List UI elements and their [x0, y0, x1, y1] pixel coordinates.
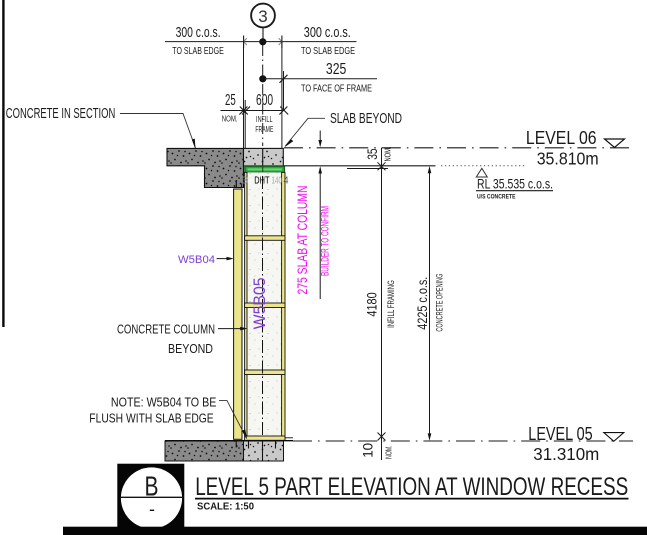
svg-text:NOM.: NOM. [222, 113, 238, 123]
svg-text:W5B04: W5B04 [178, 254, 215, 266]
svg-text:325: 325 [326, 61, 346, 78]
svg-text:NOM.: NOM. [385, 445, 394, 459]
svg-text:4180: 4180 [365, 292, 380, 316]
svg-text:3: 3 [241, 176, 250, 187]
svg-text:3: 3 [258, 7, 267, 26]
svg-text:INFILL: INFILL [256, 114, 273, 124]
svg-text:TO FACE OF FRAME: TO FACE OF FRAME [301, 82, 372, 94]
svg-text:NOTE: W5B04 TO BE: NOTE: W5B04 TO BE [111, 395, 217, 409]
svg-text:35: 35 [365, 148, 380, 159]
svg-text:CONCRETE COLUMN: CONCRETE COLUMN [117, 323, 215, 337]
svg-text:600: 600 [256, 92, 273, 109]
svg-text:25: 25 [225, 92, 236, 109]
svg-text:SCALE: 1:50: SCALE: 1:50 [197, 501, 254, 513]
svg-text:SLAB BEYOND: SLAB BEYOND [330, 111, 402, 127]
svg-text:4225 c.o.s.: 4225 c.o.s. [415, 277, 430, 330]
svg-text:LEVEL 05: LEVEL 05 [528, 423, 592, 444]
svg-text:300 c.o.s.: 300 c.o.s. [176, 24, 221, 41]
svg-text:35.810m: 35.810m [537, 149, 599, 169]
svg-text:FRAME: FRAME [255, 124, 273, 134]
svg-text:LEVEL 5 PART ELEVATION AT WIND: LEVEL 5 PART ELEVATION AT WINDOW RECESS [195, 473, 628, 501]
svg-text:FLUSH WITH SLAB EDGE: FLUSH WITH SLAB EDGE [89, 412, 213, 426]
svg-text:140: 140 [272, 176, 283, 187]
svg-text:INFILL FRAMING: INFILL FRAMING [386, 280, 397, 328]
svg-text:TO SLAB EDGE: TO SLAB EDGE [301, 45, 355, 57]
svg-text:LEVEL 06: LEVEL 06 [526, 127, 597, 148]
svg-text:BUILDER TO CONFIRM: BUILDER TO CONFIRM [319, 206, 331, 276]
svg-text:CONCRETE IN SECTION: CONCRETE IN SECTION [6, 106, 116, 122]
svg-text:300 c.o.s.: 300 c.o.s. [304, 24, 351, 41]
svg-text:CONCRETE OPENING: CONCRETE OPENING [434, 274, 445, 332]
svg-text:BEYOND: BEYOND [168, 342, 213, 356]
svg-text:W5B05: W5B05 [250, 277, 269, 329]
svg-text:31.310m: 31.310m [533, 444, 599, 464]
svg-text:TO SLAB EDGE: TO SLAB EDGE [172, 45, 224, 57]
svg-text:U/S CONCRETE: U/S CONCRETE [477, 193, 516, 200]
svg-text:275 SLAB AT COLUMN: 275 SLAB AT COLUMN [294, 186, 310, 295]
svg-text:10: 10 [360, 443, 375, 458]
svg-text:4: 4 [284, 176, 289, 187]
svg-text:-: - [149, 499, 155, 519]
svg-text:NOM.: NOM. [384, 147, 393, 162]
svg-text:RL 35.535 c.o.s.: RL 35.535 c.o.s. [477, 176, 553, 192]
svg-text:B: B [145, 470, 159, 501]
